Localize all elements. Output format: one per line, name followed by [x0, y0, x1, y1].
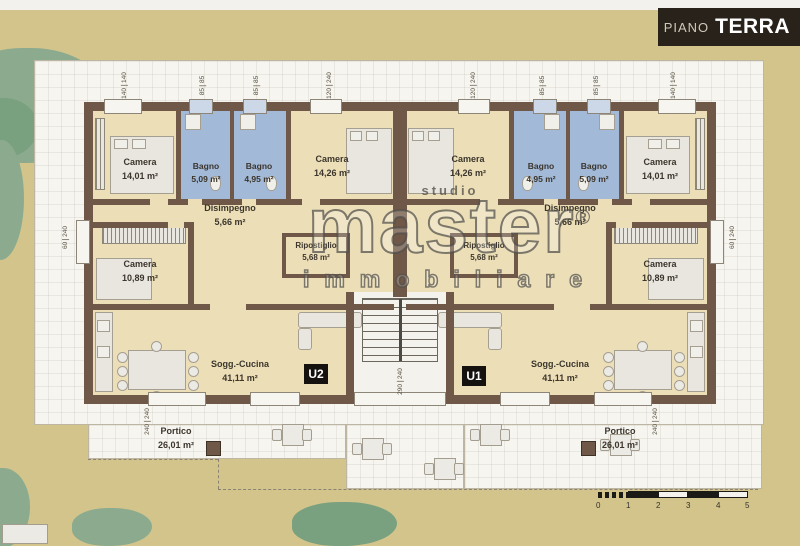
dim-value: 85: [593, 88, 600, 95]
dim-value: 240: [144, 408, 151, 422]
wall-segment: [346, 292, 354, 404]
room-label: Camera10,89 m²: [95, 258, 185, 286]
dimension-label: 8585: [253, 76, 260, 95]
chair: [637, 341, 648, 352]
scale-bar: 0 1 2 3 4 5: [596, 490, 764, 514]
room-area: 26,01 m²: [602, 440, 638, 450]
room-label: Disimpegno5,66 m²: [185, 202, 275, 230]
dining-table: [128, 350, 186, 390]
dim-value: 85: [253, 88, 260, 95]
dim-value: 85: [539, 76, 546, 86]
pillow: [412, 131, 424, 141]
outdoor-table-set: [352, 430, 392, 466]
dashed-boundary: [88, 459, 218, 460]
room-area: 10,89 m²: [122, 273, 158, 283]
dim-value: 85: [199, 76, 206, 86]
room-label: Sogg.-Cucina41,11 m²: [195, 358, 285, 386]
dim-value: 85: [199, 88, 206, 95]
shower: [185, 114, 201, 130]
wardrobe: [614, 226, 698, 244]
room-area: 4,95 m²: [244, 174, 273, 184]
room-area: 4,95 m²: [526, 174, 555, 184]
room-area: 5,66 m²: [554, 217, 585, 227]
room-label: Camera14,26 m²: [423, 153, 513, 181]
room-name: Camera: [643, 259, 676, 269]
room-name: Camera: [643, 157, 676, 167]
room-label: Ripostiglio5,68 m²: [444, 240, 524, 265]
kitchen-hob: [97, 346, 110, 358]
room-area: 14,01 m²: [642, 171, 678, 181]
window: [710, 220, 724, 264]
room-area: 14,26 m²: [450, 168, 486, 178]
unit-badge-u2: U2: [304, 364, 328, 384]
pillow: [114, 139, 128, 149]
dim-value: 60: [729, 242, 736, 249]
party-wall: [393, 102, 407, 297]
scale-tick: 3: [686, 501, 690, 510]
floorplan-photo: Camera14,01 m² Bagno5,09 m² Bagno4,95 m²…: [0, 0, 800, 546]
wall-segment: [188, 222, 194, 310]
dimension-label: 8585: [199, 76, 206, 95]
dim-value: 240: [326, 72, 333, 86]
chair: [117, 366, 128, 377]
chair: [674, 352, 685, 363]
unit-badge-u1: U1: [462, 366, 486, 386]
dim-value: 140: [121, 72, 128, 86]
window: [658, 99, 696, 114]
dimension-label: 120240: [326, 72, 333, 99]
outdoor-table-set: [470, 416, 510, 452]
room-name: Bagno: [246, 161, 272, 171]
french-door: [148, 392, 206, 406]
french-door: [500, 392, 550, 406]
door-opening: [302, 199, 320, 205]
room-label: Bagno5,09 m²: [176, 160, 236, 186]
room-name: Sogg.-Cucina: [211, 359, 269, 369]
pillow: [366, 131, 378, 141]
room-area: 41,11 m²: [542, 373, 578, 383]
dashed-boundary: [218, 459, 219, 489]
room-name: Ripostiglio: [463, 241, 504, 250]
door-opening: [150, 199, 168, 205]
dimension-label: 240240: [144, 408, 151, 435]
room-label: Camera10,89 m²: [615, 258, 705, 286]
outdoor-table: [480, 424, 502, 446]
pillow: [666, 139, 680, 149]
dimension-label: 140140: [670, 72, 677, 99]
scale-tick: 5: [745, 501, 749, 510]
dim-value: 140: [670, 72, 677, 86]
scale-tick: 4: [716, 501, 720, 510]
door-opening: [210, 304, 246, 310]
room-label: Camera14,26 m²: [287, 153, 377, 181]
dimension-label: 120240: [470, 72, 477, 99]
outdoor-table: [434, 458, 456, 480]
chair: [117, 352, 128, 363]
room-name: Camera: [123, 157, 156, 167]
room-area: 5,66 m²: [214, 217, 245, 227]
chair: [117, 380, 128, 391]
pillow: [428, 131, 440, 141]
chair: [151, 341, 162, 352]
room-name: Ripostiglio: [295, 241, 336, 250]
outdoor-table: [362, 438, 384, 460]
chair: [674, 380, 685, 391]
wall-segment: [606, 222, 612, 310]
scale-tick: 2: [656, 501, 660, 510]
dim-value: 240: [62, 226, 69, 240]
pillow: [648, 139, 662, 149]
room-area: 14,26 m²: [314, 168, 350, 178]
room-area: 5,68 m²: [470, 253, 498, 262]
room-name: Sogg.-Cucina: [531, 359, 589, 369]
shower: [599, 114, 615, 130]
room-name: Disimpegno: [544, 203, 596, 213]
banner-title: TERRA: [715, 15, 790, 39]
room-name: Disimpegno: [204, 203, 256, 213]
kitchen-hob: [690, 346, 703, 358]
room-label: Camera14,01 m²: [615, 156, 705, 184]
wardrobe: [102, 226, 186, 244]
window: [76, 220, 90, 264]
door-opening: [554, 304, 590, 310]
shower: [240, 114, 256, 130]
dim-value: 240: [652, 408, 659, 422]
dim-value: 120: [470, 88, 477, 99]
room-area: 5,68 m²: [302, 253, 330, 262]
room-label: Ripostiglio5,68 m²: [276, 240, 356, 265]
dimension-label: 8585: [539, 76, 546, 95]
stairs-divider: [399, 299, 402, 361]
floor-title-banner: PIANO TERRA: [658, 8, 800, 46]
wall-segment: [450, 274, 518, 278]
dim-value: 140: [670, 88, 677, 99]
scale-bar-segment: [628, 491, 658, 498]
dining-table: [614, 350, 672, 390]
scale-bar-segment: [718, 491, 748, 498]
dim-value: 85: [253, 76, 260, 86]
french-door: [250, 392, 300, 406]
room-area: 10,89 m²: [642, 273, 678, 283]
dimension-label: 60240: [729, 226, 736, 249]
room-area: 5,09 m²: [191, 174, 220, 184]
door-opening: [480, 199, 498, 205]
door-opening: [632, 199, 650, 205]
dimension-label: 60240: [62, 226, 69, 249]
scale-tick: 0: [596, 501, 600, 510]
room-label: Sogg.-Cucina41,11 m²: [515, 358, 605, 386]
outdoor-table-set: [424, 450, 464, 486]
room-name: Camera: [315, 154, 348, 164]
shower: [544, 114, 560, 130]
wall-segment: [446, 292, 454, 404]
dimension-label: 140140: [121, 72, 128, 99]
window: [587, 99, 611, 114]
window: [310, 99, 342, 114]
outdoor-table: [282, 424, 304, 446]
sofa: [488, 328, 502, 350]
garden-feature: [2, 524, 48, 544]
wall-segment: [282, 274, 350, 278]
scale-bar-dashed-segment: [598, 492, 628, 498]
door-opening: [616, 222, 632, 228]
window: [189, 99, 213, 114]
room-name: Bagno: [528, 161, 554, 171]
dim-value: 120: [326, 88, 333, 99]
room-area: 5,09 m²: [579, 174, 608, 184]
dim-value: 85: [593, 76, 600, 86]
scale-bar-segment: [688, 491, 718, 498]
banner-prefix: PIANO: [664, 20, 709, 35]
room-name: Portico: [604, 426, 635, 436]
room-label: Bagno4,95 m²: [229, 160, 289, 186]
room-name: Camera: [451, 154, 484, 164]
scale-bar-segment: [658, 491, 688, 498]
room-area: 14,01 m²: [122, 171, 158, 181]
pillow: [132, 139, 146, 149]
window: [243, 99, 267, 114]
room-label: Disimpegno5,66 m²: [525, 202, 615, 230]
outdoor-table-set: [272, 416, 312, 452]
kitchen-sink: [97, 320, 110, 332]
french-door: [594, 392, 652, 406]
room-area: 26,01 m²: [158, 440, 194, 450]
dim-value: 85: [539, 88, 546, 95]
dim-value: 240: [397, 368, 404, 382]
room-area: 41,11 m²: [222, 373, 258, 383]
dim-value: 240: [652, 424, 659, 435]
room-name: Portico: [160, 426, 191, 436]
dim-value: 60: [62, 242, 69, 249]
dim-value: 240: [729, 226, 736, 240]
room-name: Bagno: [193, 161, 219, 171]
scale-tick: 1: [626, 501, 630, 510]
dimension-label: 240240: [652, 408, 659, 435]
pillow: [350, 131, 362, 141]
kitchen-sink: [690, 320, 703, 332]
wall-segment: [282, 233, 350, 237]
window: [104, 99, 142, 114]
room-name: Camera: [123, 259, 156, 269]
dimension-label: 8585: [593, 76, 600, 95]
dim-value: 240: [470, 72, 477, 86]
dimension-label: 290240: [397, 368, 404, 395]
dim-value: 240: [144, 424, 151, 435]
window: [533, 99, 557, 114]
dim-value: 140: [121, 88, 128, 99]
chair: [674, 366, 685, 377]
room-label: Bagno4,95 m²: [511, 160, 571, 186]
sofa: [298, 328, 312, 350]
window: [458, 99, 490, 114]
room-name: Bagno: [581, 161, 607, 171]
door-opening: [168, 222, 184, 228]
dim-value: 290: [397, 384, 404, 395]
wall-segment: [450, 233, 518, 237]
room-label: Camera14,01 m²: [95, 156, 185, 184]
